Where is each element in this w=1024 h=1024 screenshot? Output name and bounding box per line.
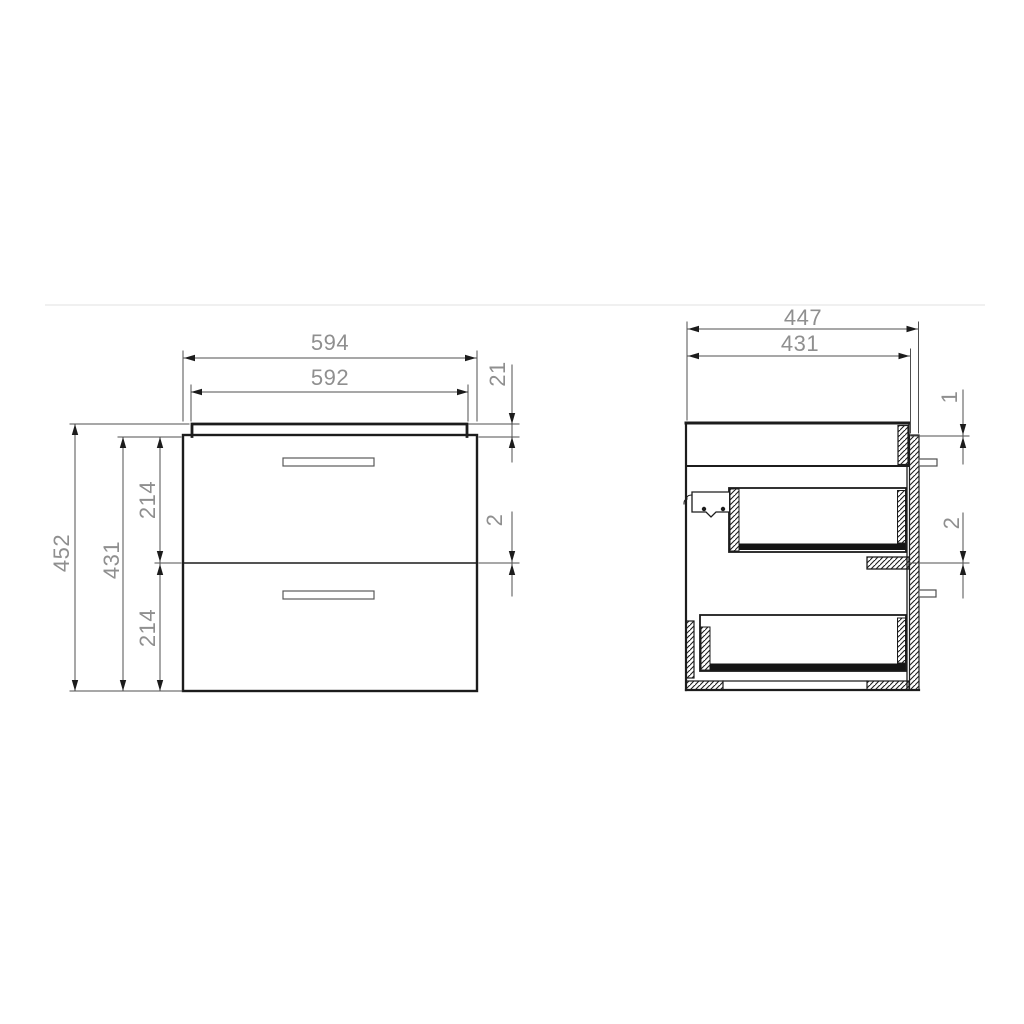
arrowhead xyxy=(688,326,699,332)
clip-screw-dot xyxy=(702,507,706,511)
technical-drawing-canvas: 594 592 21 2 xyxy=(0,0,1024,1024)
upper-drawer-back-section xyxy=(898,491,906,544)
arrowhead xyxy=(960,551,966,562)
arrowhead xyxy=(157,551,163,562)
dim-label-runner-gap: 2 xyxy=(939,517,964,530)
arrowhead xyxy=(509,437,515,448)
upper-wall-bracket-tab xyxy=(919,459,937,466)
dim-front-top-panel-width: 592 xyxy=(191,365,468,421)
arrowhead xyxy=(688,353,699,359)
lower-drawer-bottom-panel xyxy=(710,664,906,671)
arrowhead xyxy=(960,437,966,448)
arrowhead xyxy=(157,564,163,575)
bottom-panel-back-section xyxy=(867,681,909,690)
lower-drawer-back-section xyxy=(898,618,906,663)
side-top-rail-section xyxy=(898,426,908,465)
dim-label-overall-height: 452 xyxy=(49,534,74,572)
dim-label-top-panel-height: 21 xyxy=(485,361,510,386)
dim-label-lower-drawer-height: 214 xyxy=(135,609,160,647)
arrowhead xyxy=(899,353,910,359)
arrowhead xyxy=(157,437,163,448)
lower-wall-bracket-tab xyxy=(919,590,936,597)
page: 594 592 21 2 xyxy=(0,0,1024,1024)
arrowhead xyxy=(509,551,515,562)
arrowhead xyxy=(120,437,126,448)
dim-label-carcass-depth: 431 xyxy=(781,331,819,356)
arrowhead xyxy=(960,564,966,575)
arrowhead xyxy=(72,680,78,691)
dim-label-overall-depth: 447 xyxy=(784,305,822,330)
lower-drawer-front-section xyxy=(701,627,710,670)
clip-screw-dot xyxy=(721,507,725,511)
arrowhead xyxy=(509,413,515,424)
arrowhead xyxy=(157,680,163,691)
front-bottom-rail-section xyxy=(686,621,694,678)
arrowhead xyxy=(509,564,515,575)
upper-drawer-bottom-panel xyxy=(739,544,906,551)
dim-label-drawer-gap: 2 xyxy=(482,514,507,527)
arrowhead xyxy=(465,355,476,361)
dim-front-drawer-gap: 2 xyxy=(479,512,519,596)
drawer-runner-shelf-section xyxy=(867,557,909,569)
lower-drawer-box xyxy=(700,615,906,671)
dim-label-overall-width: 594 xyxy=(311,330,349,355)
upper-drawer-box xyxy=(729,488,906,552)
dim-side-carcass-depth: 431 xyxy=(688,331,911,433)
arrowhead xyxy=(191,389,202,395)
arrowhead xyxy=(907,326,918,332)
dim-side-overall-depth: 447 xyxy=(687,305,919,433)
dim-label-back-panel-top-gap: 1 xyxy=(937,391,962,404)
arrowhead xyxy=(457,389,468,395)
drawer-slide-clip xyxy=(692,492,729,517)
dim-side-back-panel-top-gap: 1 xyxy=(911,390,969,464)
dim-front-upper-drawer-height: 214 xyxy=(135,437,181,563)
dim-label-upper-drawer-height: 214 xyxy=(135,481,160,519)
side-view: 447 431 1 2 xyxy=(684,305,969,690)
upper-drawer-handle xyxy=(283,458,374,466)
lower-drawer-handle xyxy=(283,591,374,599)
bottom-panel-front-section xyxy=(686,681,723,690)
arrowhead xyxy=(120,680,126,691)
front-view: 594 592 21 2 xyxy=(49,330,519,691)
arrowhead xyxy=(72,424,78,435)
dim-label-carcass-height: 431 xyxy=(99,541,124,579)
dim-front-lower-drawer-height: 214 xyxy=(135,564,163,691)
arrowhead xyxy=(184,355,195,361)
upper-drawer-front-section xyxy=(730,489,739,551)
dim-front-carcass-height: 431 xyxy=(99,437,181,691)
arrowhead xyxy=(960,424,966,435)
dim-label-top-panel-width: 592 xyxy=(311,365,349,390)
